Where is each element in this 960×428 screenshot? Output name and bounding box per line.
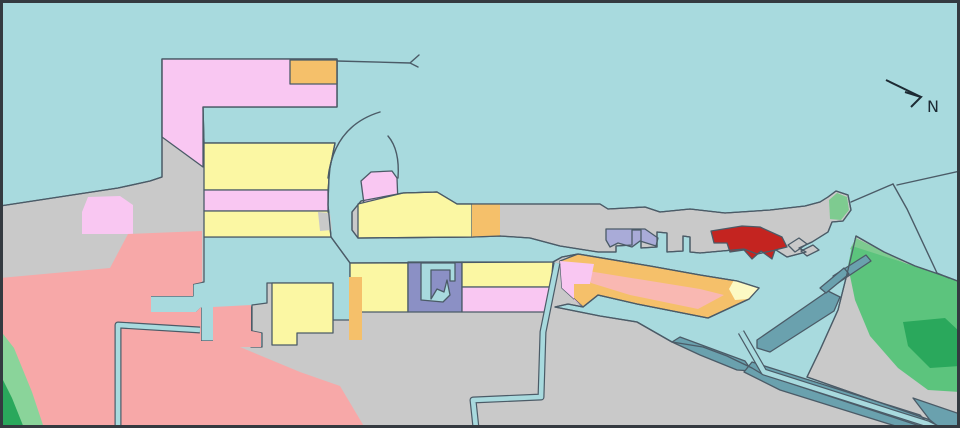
zone-pink-patch-west — [82, 196, 133, 234]
harbor-map-svg: N — [0, 0, 960, 428]
zone-orange-strip — [349, 277, 362, 340]
zone-orange-top — [290, 60, 337, 84]
zone-yellow-band-1 — [204, 143, 335, 190]
zone-yellow-band-2 — [204, 211, 331, 237]
north-pier-orange — [472, 204, 500, 237]
zone-pink-block-f — [462, 287, 551, 312]
zone-yellow-block-e — [462, 262, 553, 287]
north-label: N — [927, 97, 939, 116]
zone-pink-band — [204, 190, 328, 211]
harbor-map: N — [0, 0, 960, 428]
